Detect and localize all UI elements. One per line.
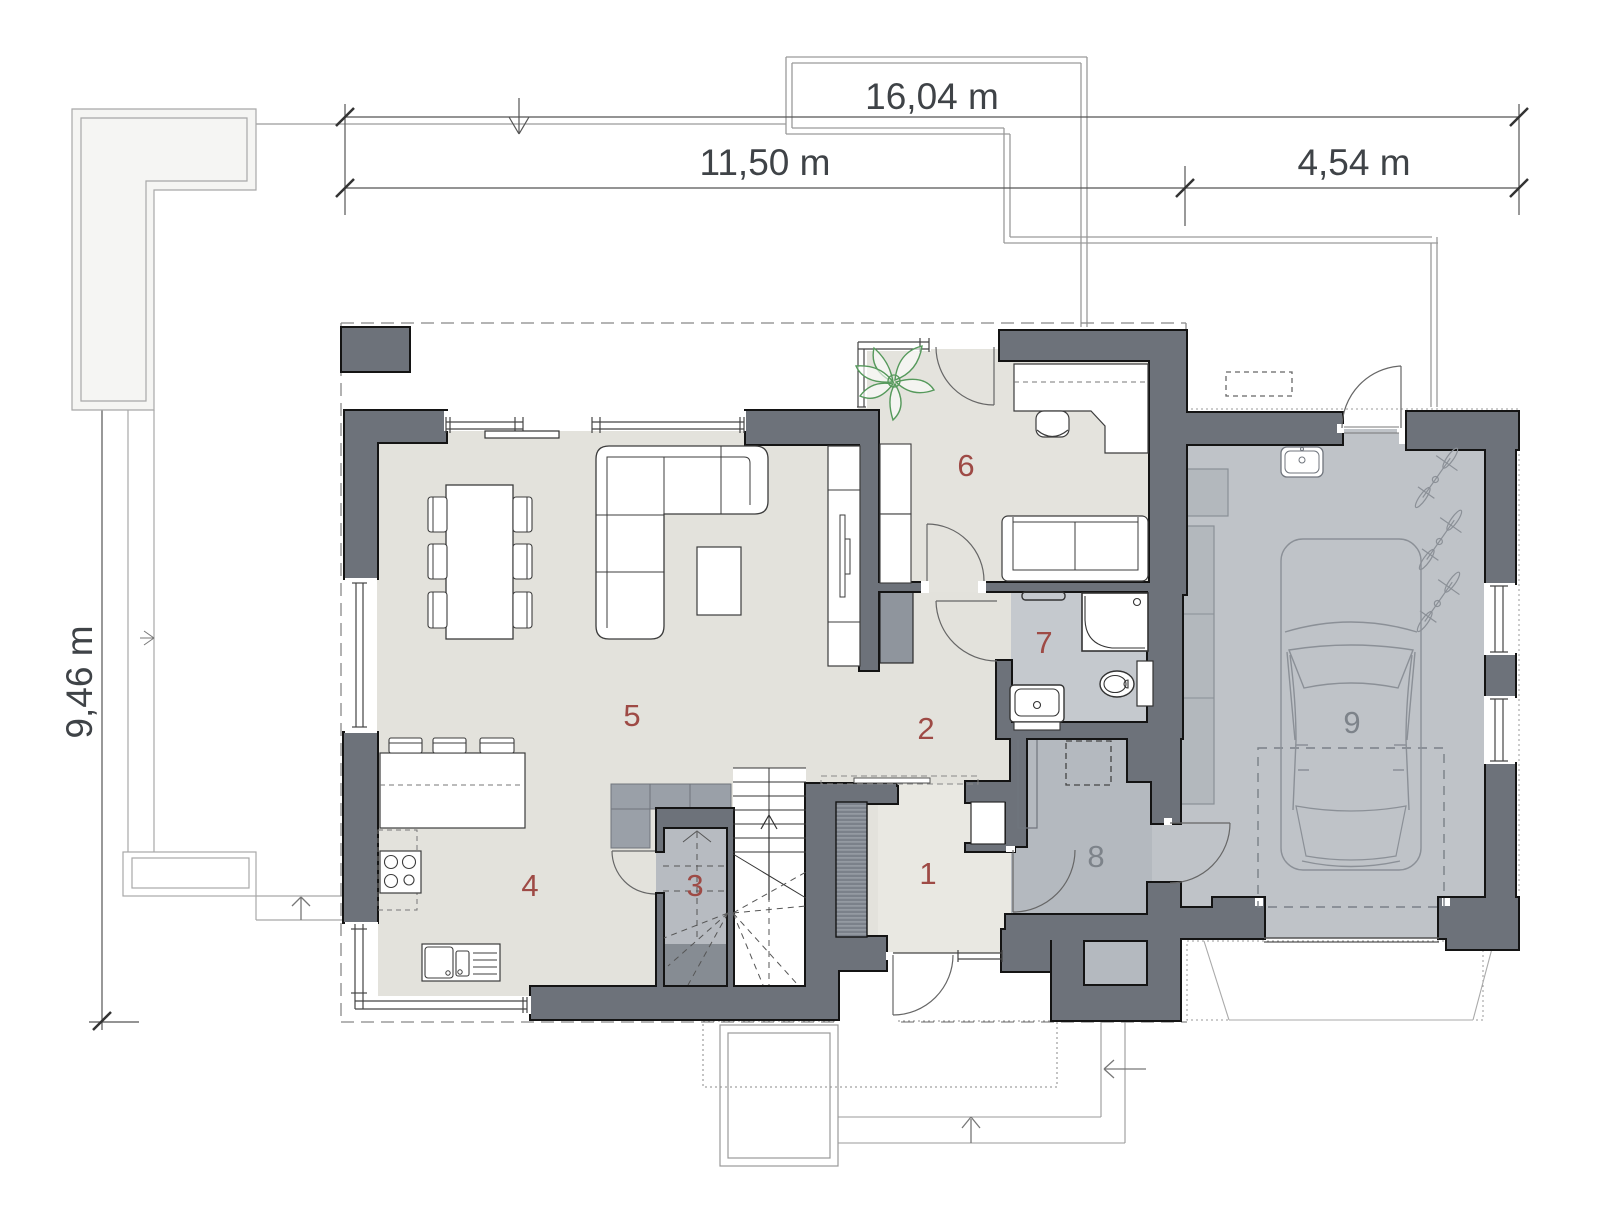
svg-text:2: 2 xyxy=(917,711,934,746)
svg-text:16,04 m: 16,04 m xyxy=(865,76,999,117)
svg-text:9: 9 xyxy=(1343,705,1360,740)
svg-text:6: 6 xyxy=(957,448,974,483)
svg-text:7: 7 xyxy=(1035,625,1052,660)
svg-text:3: 3 xyxy=(686,868,703,903)
svg-text:5: 5 xyxy=(623,698,640,733)
svg-text:11,50 m: 11,50 m xyxy=(700,142,831,183)
svg-text:4: 4 xyxy=(521,868,538,903)
svg-text:8: 8 xyxy=(1087,839,1104,874)
svg-text:4,54 m: 4,54 m xyxy=(1297,142,1410,183)
svg-text:1: 1 xyxy=(919,856,936,891)
svg-text:9,46 m: 9,46 m xyxy=(59,625,100,738)
